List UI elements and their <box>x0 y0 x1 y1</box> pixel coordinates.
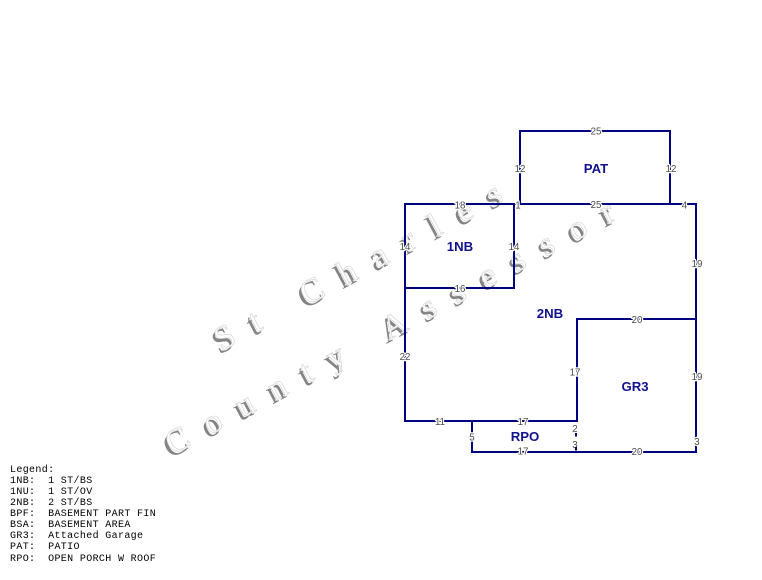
svg-text:22: 22 <box>400 352 411 363</box>
svg-text:GR3: GR3 <box>621 379 648 394</box>
svg-text:3: 3 <box>694 437 699 448</box>
svg-text:14: 14 <box>509 242 520 253</box>
svg-text:17: 17 <box>570 368 581 379</box>
svg-text:17: 17 <box>518 447 529 458</box>
svg-text:12: 12 <box>515 164 526 175</box>
svg-text:19: 19 <box>692 372 703 383</box>
svg-text:RPO: RPO <box>511 429 540 444</box>
svg-text:4: 4 <box>682 201 688 212</box>
svg-text:25: 25 <box>591 127 602 138</box>
svg-text:25: 25 <box>591 200 602 211</box>
svg-text:14: 14 <box>400 242 411 253</box>
svg-text:11: 11 <box>435 417 445 428</box>
svg-text:19: 19 <box>692 259 703 270</box>
svg-text:18: 18 <box>455 201 466 212</box>
svg-text:1: 1 <box>515 201 520 212</box>
svg-text:17: 17 <box>518 417 529 428</box>
svg-text:1NB: 1NB <box>447 239 473 254</box>
svg-text:16: 16 <box>455 284 466 295</box>
svg-text:20: 20 <box>632 315 643 326</box>
svg-text:2NB: 2NB <box>537 306 563 321</box>
svg-text:20: 20 <box>632 447 643 458</box>
svg-text:5: 5 <box>469 433 474 444</box>
svg-text:12: 12 <box>666 164 677 175</box>
svg-text:PAT: PAT <box>584 161 608 176</box>
